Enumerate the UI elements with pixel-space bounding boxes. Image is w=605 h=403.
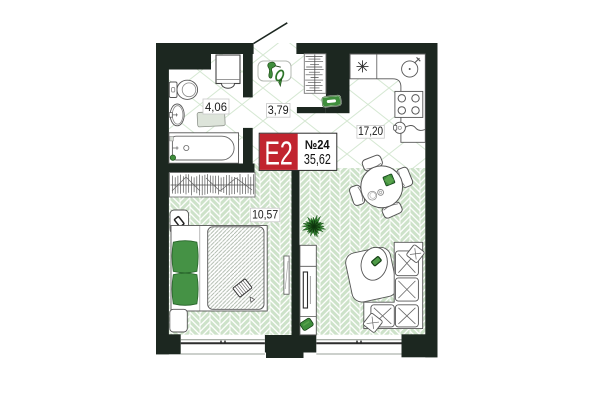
svg-text:4,06: 4,06 <box>205 100 227 114</box>
svg-text:№24: №24 <box>305 138 330 152</box>
svg-text:3,79: 3,79 <box>268 103 289 117</box>
svg-text:E2: E2 <box>264 134 292 171</box>
svg-text:17,20: 17,20 <box>358 124 383 138</box>
svg-text:10,57: 10,57 <box>252 208 278 222</box>
svg-text:35,62: 35,62 <box>304 152 331 168</box>
